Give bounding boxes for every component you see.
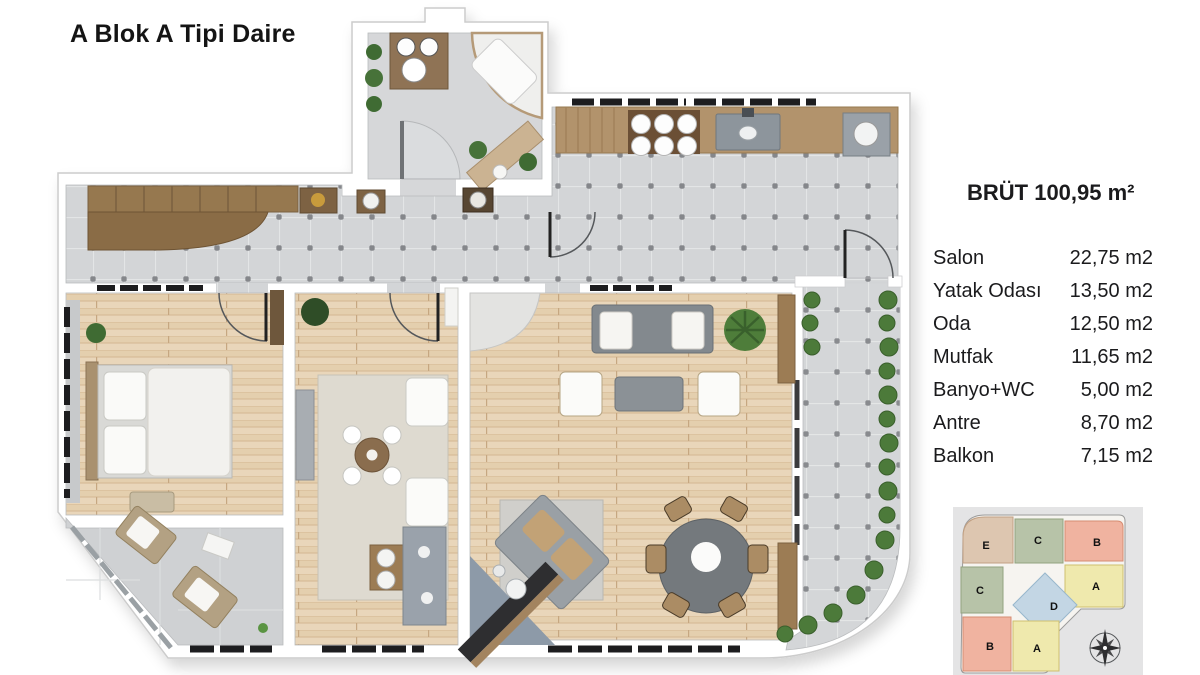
room-label: Balkon bbox=[933, 445, 994, 468]
room-area: 22,75 m2 bbox=[1070, 247, 1153, 270]
room-label: Antre bbox=[933, 412, 981, 435]
key-plan-drawing: E C B C A D B A bbox=[953, 507, 1143, 675]
unit-label: A bbox=[1092, 581, 1100, 593]
room-label: Oda bbox=[933, 313, 971, 336]
unit-label: B bbox=[986, 641, 994, 653]
room-area: 12,50 m2 bbox=[1070, 313, 1153, 336]
room-area: 13,50 m2 bbox=[1070, 280, 1153, 303]
room-area: 8,70 m2 bbox=[1081, 412, 1153, 435]
table-row: Oda 12,50 m2 bbox=[933, 308, 1153, 341]
room-label: Banyo+WC bbox=[933, 379, 1035, 402]
room-label: Yatak Odası bbox=[933, 280, 1042, 303]
table-row: Banyo+WC 5,00 m2 bbox=[933, 374, 1153, 407]
table-row: Salon 22,75 m2 bbox=[933, 242, 1153, 275]
unit-label: C bbox=[1034, 535, 1042, 547]
key-plan: E C B C A D B A bbox=[953, 507, 1143, 675]
area-table: BRÜT 100,95 m² Salon 22,75 m2 Yatak Odas… bbox=[933, 180, 1153, 473]
room-area: 7,15 m2 bbox=[1081, 445, 1153, 468]
unit-label: D bbox=[1050, 601, 1058, 613]
room-label: Mutfak bbox=[933, 346, 993, 369]
unit-label: A bbox=[1033, 643, 1041, 655]
table-row: Mutfak 11,65 m2 bbox=[933, 341, 1153, 374]
room-area: 5,00 m2 bbox=[1081, 379, 1153, 402]
room-area: 11,65 m2 bbox=[1071, 346, 1153, 369]
area-table-title: BRÜT 100,95 m² bbox=[933, 180, 1153, 206]
area-table-rows: Salon 22,75 m2 Yatak Odası 13,50 m2 Oda … bbox=[933, 242, 1153, 473]
unit-label: B bbox=[1093, 537, 1101, 549]
compass-icon bbox=[1087, 629, 1124, 667]
table-row: Yatak Odası 13,50 m2 bbox=[933, 275, 1153, 308]
floor-plan-sheet: A Blok A Tipi Daire BRÜT 100,95 m² Salon… bbox=[0, 0, 1200, 675]
kitchen-counter bbox=[556, 107, 898, 156]
room-label: Salon bbox=[933, 247, 984, 270]
table-row: Balkon 7,15 m2 bbox=[933, 440, 1153, 473]
page-title: A Blok A Tipi Daire bbox=[70, 20, 296, 49]
unit-label: E bbox=[982, 540, 989, 552]
unit-label: C bbox=[976, 585, 984, 597]
table-row: Antre 8,70 m2 bbox=[933, 407, 1153, 440]
